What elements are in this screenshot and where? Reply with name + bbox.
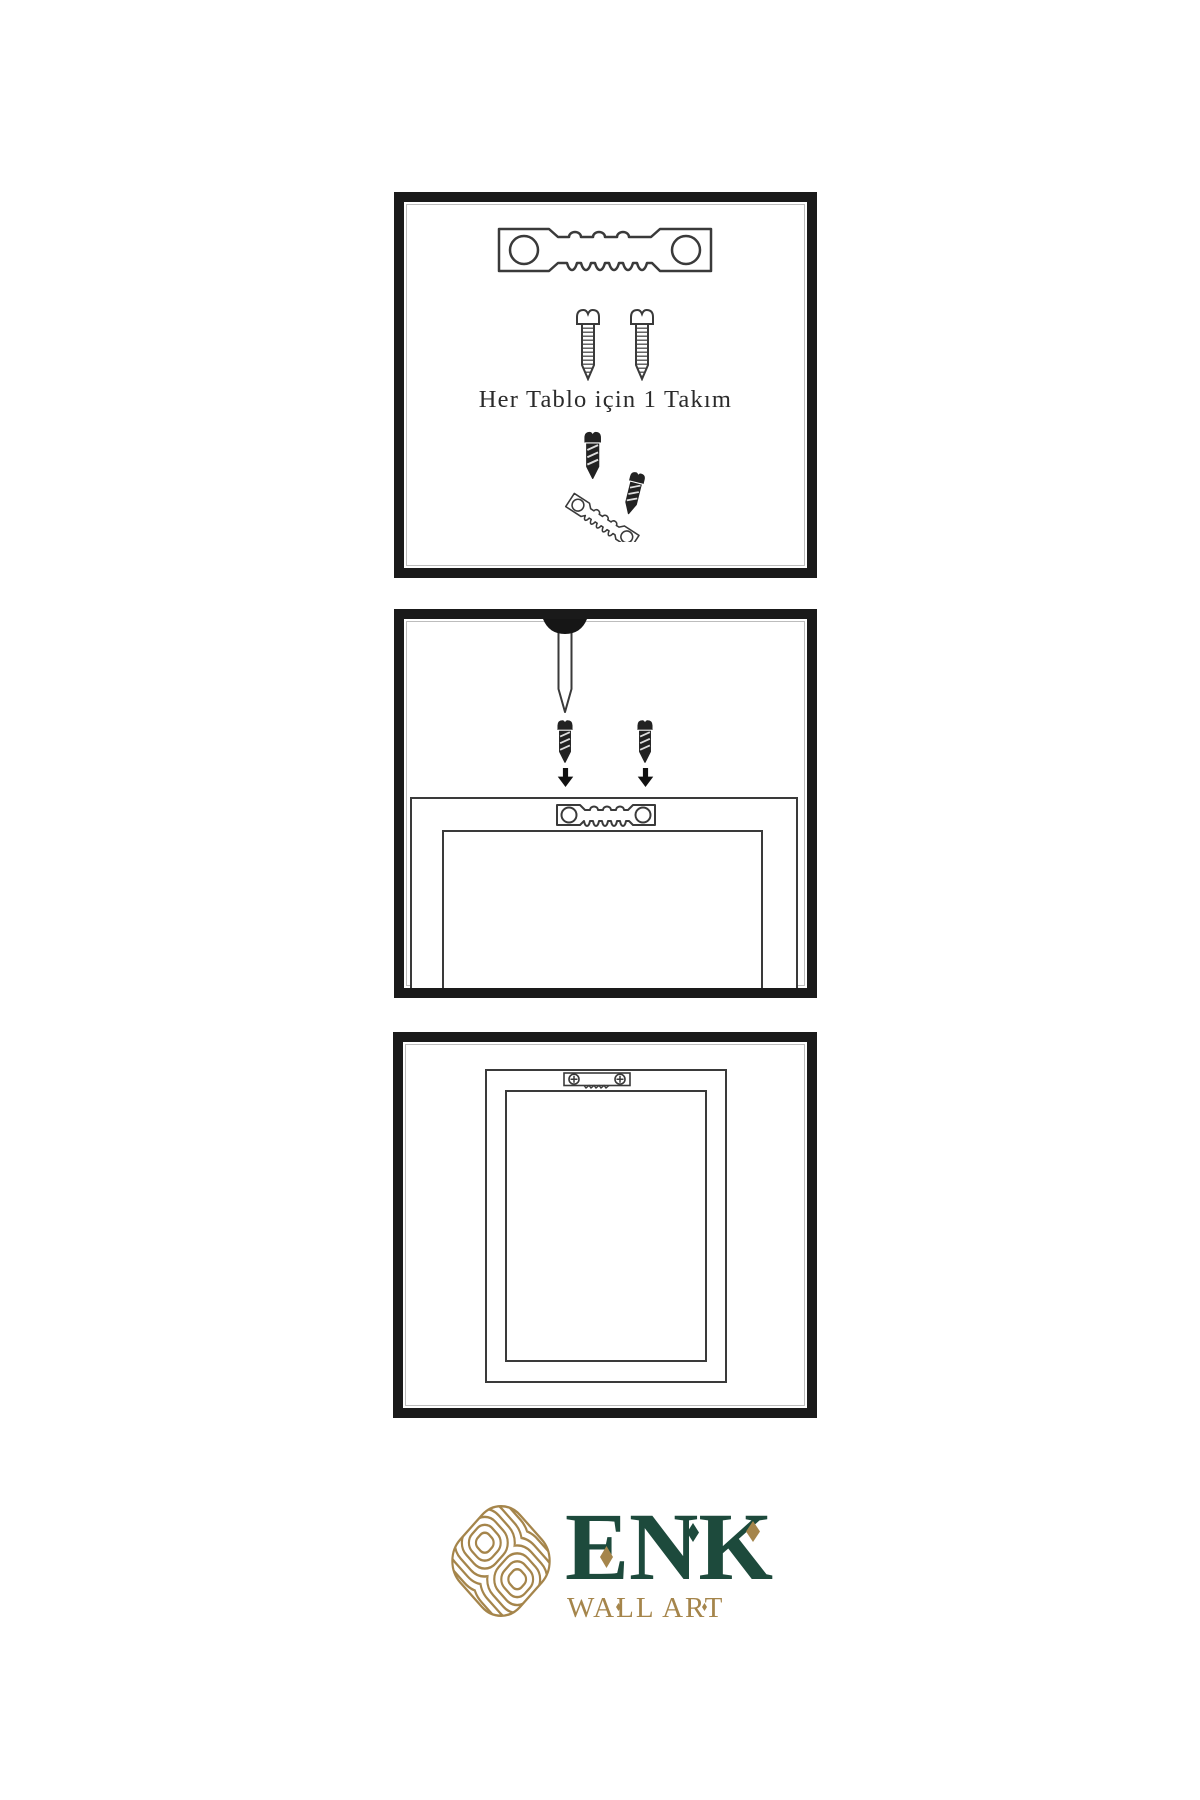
hanger-screwed-on-frame-icon (563, 1072, 631, 1089)
nail-in-wall-icon (543, 619, 587, 715)
knot-emblem-icon (438, 1490, 564, 1632)
dark-screw-icon (555, 718, 575, 764)
panel-installation-step (394, 609, 817, 998)
frame-back-inner-edge (505, 1090, 707, 1362)
sawtooth-hanger-on-frame-icon (555, 802, 657, 828)
brand-tagline: WALL ART (567, 1594, 724, 1623)
frame-back-outer-edge (485, 1069, 727, 1383)
screw-icon (573, 307, 603, 381)
instruction-sheet: Her Tablo için 1 Takım ENK WALL ART (0, 0, 1200, 1800)
panel-hardware-kit: Her Tablo için 1 Takım (394, 192, 817, 578)
dark-screw-icon (635, 718, 655, 764)
brand-name: ENK (565, 1499, 773, 1595)
frame-back-inner-edge (442, 830, 763, 988)
panel-mounted-frame (393, 1032, 817, 1418)
screw-icon (627, 307, 657, 381)
screw-into-hanger-icon (544, 429, 656, 542)
arrow-down-icon (637, 768, 654, 787)
kit-caption: Her Tablo için 1 Takım (404, 386, 807, 414)
sawtooth-hanger-icon (495, 222, 715, 278)
arrow-down-icon (557, 768, 574, 787)
